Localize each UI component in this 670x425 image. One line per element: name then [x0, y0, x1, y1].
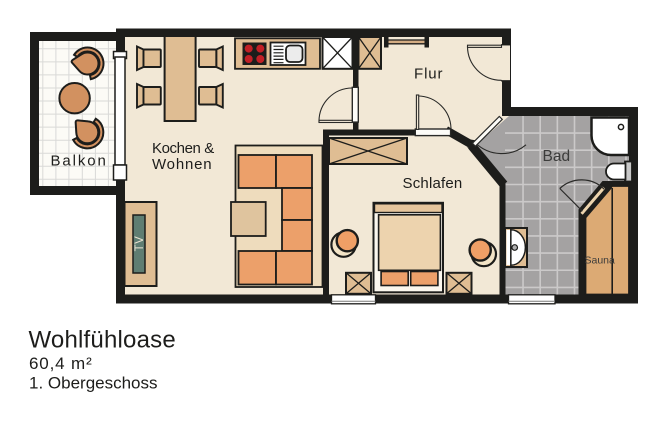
svg-text:Wohnen: Wohnen [152, 156, 212, 173]
svg-text:Schlafen: Schlafen [403, 175, 463, 192]
svg-text:Balkon: Balkon [51, 153, 108, 170]
svg-text:1. Obergeschoss: 1. Obergeschoss [29, 374, 158, 393]
svg-text:Sauna: Sauna [585, 255, 616, 267]
svg-text:Bad: Bad [543, 148, 571, 165]
svg-text:60,4 m²: 60,4 m² [29, 354, 93, 373]
svg-text:Flur: Flur [414, 66, 443, 83]
svg-text:TV: TV [134, 236, 146, 252]
svg-text:Kochen &: Kochen & [152, 140, 214, 157]
svg-text:Wohlfühloase: Wohlfühloase [29, 327, 176, 354]
